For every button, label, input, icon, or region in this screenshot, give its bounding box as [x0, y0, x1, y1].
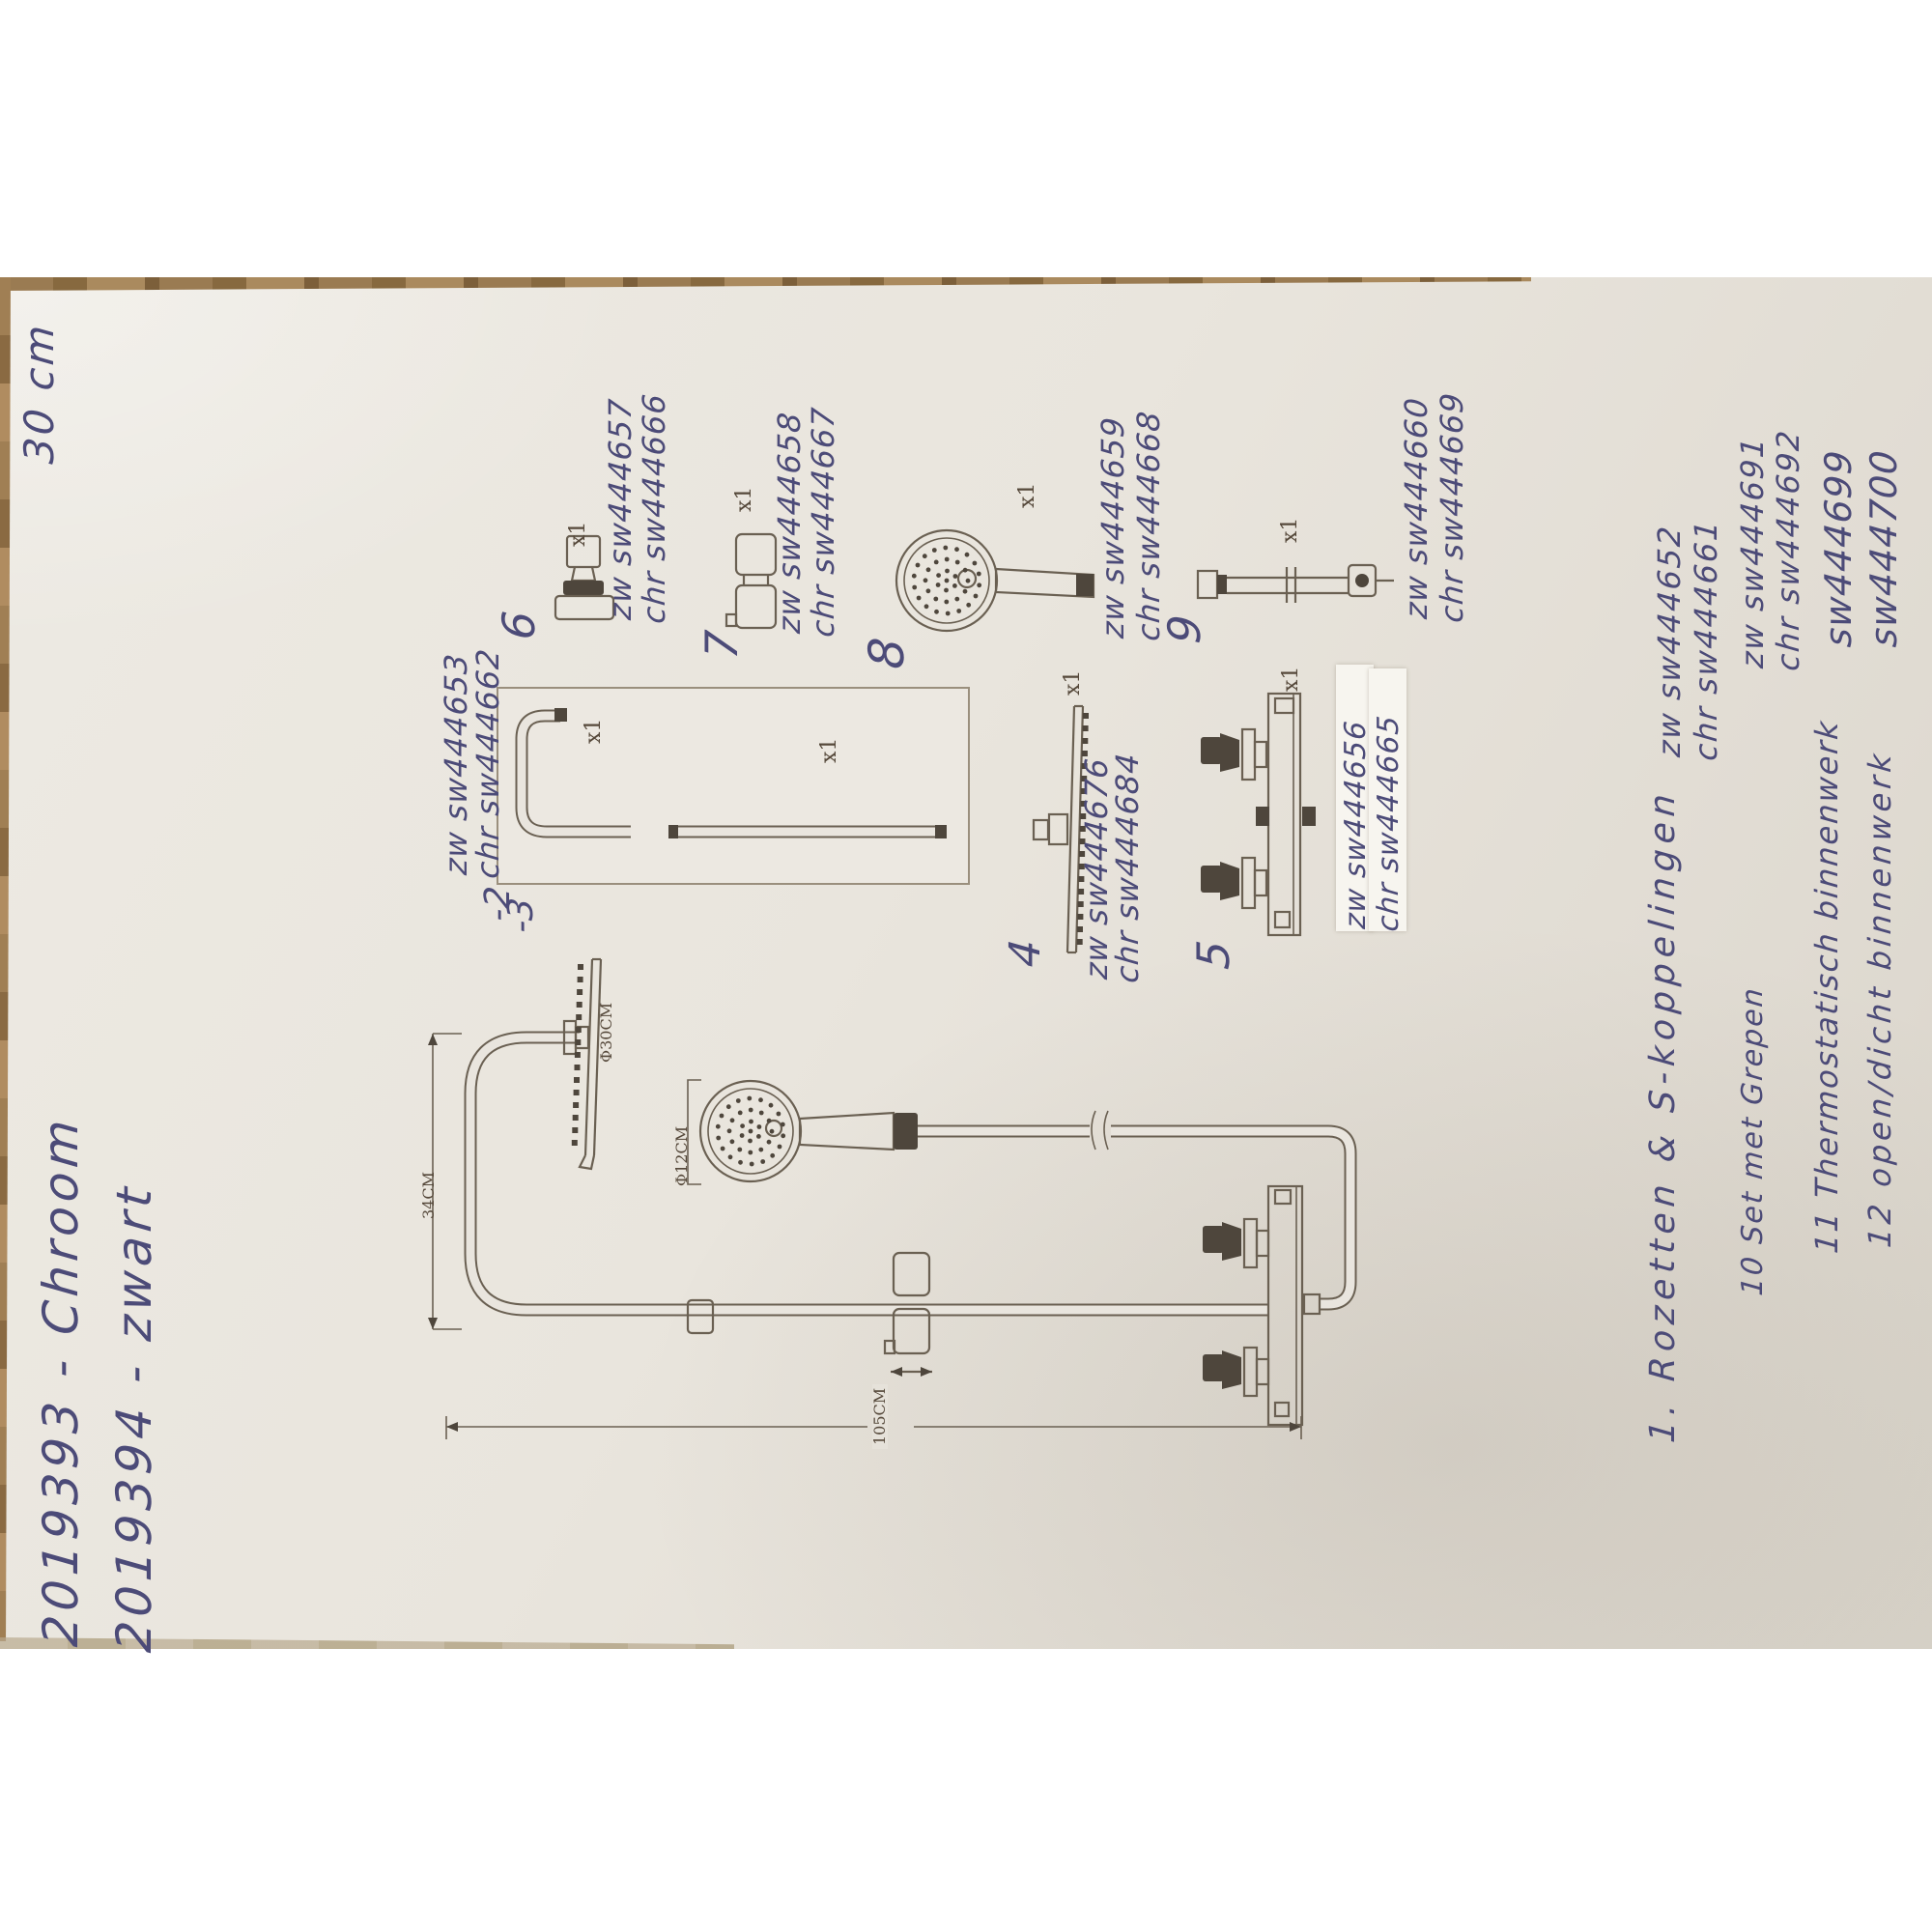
corner-note: 30 cm	[19, 321, 60, 465]
list-item-12-code: sw444700	[1865, 448, 1902, 648]
part6-code-zw: zw sw444657	[605, 397, 636, 621]
part2-qty: x1	[583, 719, 605, 744]
part2-3-code-chr: chr sw444662	[472, 647, 503, 880]
part2-3-box-drawing	[497, 688, 969, 884]
part5-qty: x1	[1281, 667, 1302, 692]
part7-label: 7	[699, 629, 744, 661]
list-item-10-code-zw: zw sw444691	[1737, 435, 1768, 669]
part9-qty: x1	[1280, 518, 1301, 543]
product-code-zwart: 2019394 - zwart	[110, 1181, 158, 1655]
dim-30cm-label: Φ30CM	[599, 1003, 614, 1063]
list-item-10: 10 Set met Grepen	[1739, 985, 1768, 1297]
product-code-chroom: 2019393 - Chroom	[37, 1113, 85, 1648]
list-item-1-code-chr: chr sw444661	[1690, 518, 1721, 762]
part8-code-chr: chr sw444668	[1133, 410, 1164, 642]
part9-extension-pipe-drawing	[1198, 565, 1394, 603]
part9-label: 9	[1162, 613, 1207, 645]
part4-label: 4	[1005, 938, 1047, 969]
list-item-11-code: sw444699	[1820, 448, 1857, 648]
part5-thermostat-drawing	[1201, 694, 1316, 935]
part3-qty: x1	[819, 738, 840, 763]
part8-label: 8	[863, 636, 911, 670]
photographed-parts-sheet: 30 cm 2019393 - Chroom 2019394 - zwart -…	[0, 0, 1932, 1932]
part4-code-zw: zw sw444676	[1081, 756, 1112, 980]
list-item-10-code-chr: chr sw444692	[1773, 428, 1804, 672]
assembled-column-drawing	[428, 959, 1350, 1439]
part5-label: 5	[1191, 939, 1236, 971]
part7-code-zw: zw sw444658	[774, 411, 805, 635]
list-item-1: 1. Rozetten & S-koppelingen	[1646, 787, 1681, 1444]
part8-qty: x1	[1017, 483, 1038, 508]
part6-label: 6	[497, 610, 541, 641]
part9-code-zw: zw sw444660	[1401, 396, 1432, 620]
part7-slider-bracket-drawing	[726, 534, 776, 628]
part7-code-chr: chr sw444667	[808, 406, 838, 639]
printed-shower-set-diagram	[0, 0, 1932, 1932]
dim-105cm-label: 105CM	[872, 1384, 888, 1449]
part6-code-chr: chr sw444666	[639, 392, 669, 625]
dim-34cm-label: 34CM	[421, 1172, 437, 1219]
part2-3-code-zw: zw sw444653	[440, 652, 471, 876]
part5-code-zw: zw sw444656	[1342, 719, 1371, 929]
part4-code-chr: chr sw444684	[1112, 752, 1143, 984]
part3-label: -3	[504, 896, 539, 934]
part7-qty: x1	[734, 487, 755, 512]
part8-code-zw: zw sw444659	[1097, 415, 1128, 639]
list-item-1-code-zw: zw sw444652	[1654, 524, 1685, 758]
dim-12cm-label: Φ12CM	[674, 1126, 690, 1186]
part9-code-chr: chr sw444669	[1436, 391, 1467, 624]
part6-qty: x1	[568, 522, 589, 547]
part4-rain-head-drawing	[1034, 706, 1083, 952]
list-item-12: 12 open/dicht binnenwerk	[1864, 749, 1895, 1248]
part5-code-chr: chr sw444665	[1375, 714, 1404, 933]
part4-qty: x1	[1063, 670, 1084, 696]
list-item-11: 11 Thermostatisch binnenwerk	[1811, 718, 1842, 1254]
